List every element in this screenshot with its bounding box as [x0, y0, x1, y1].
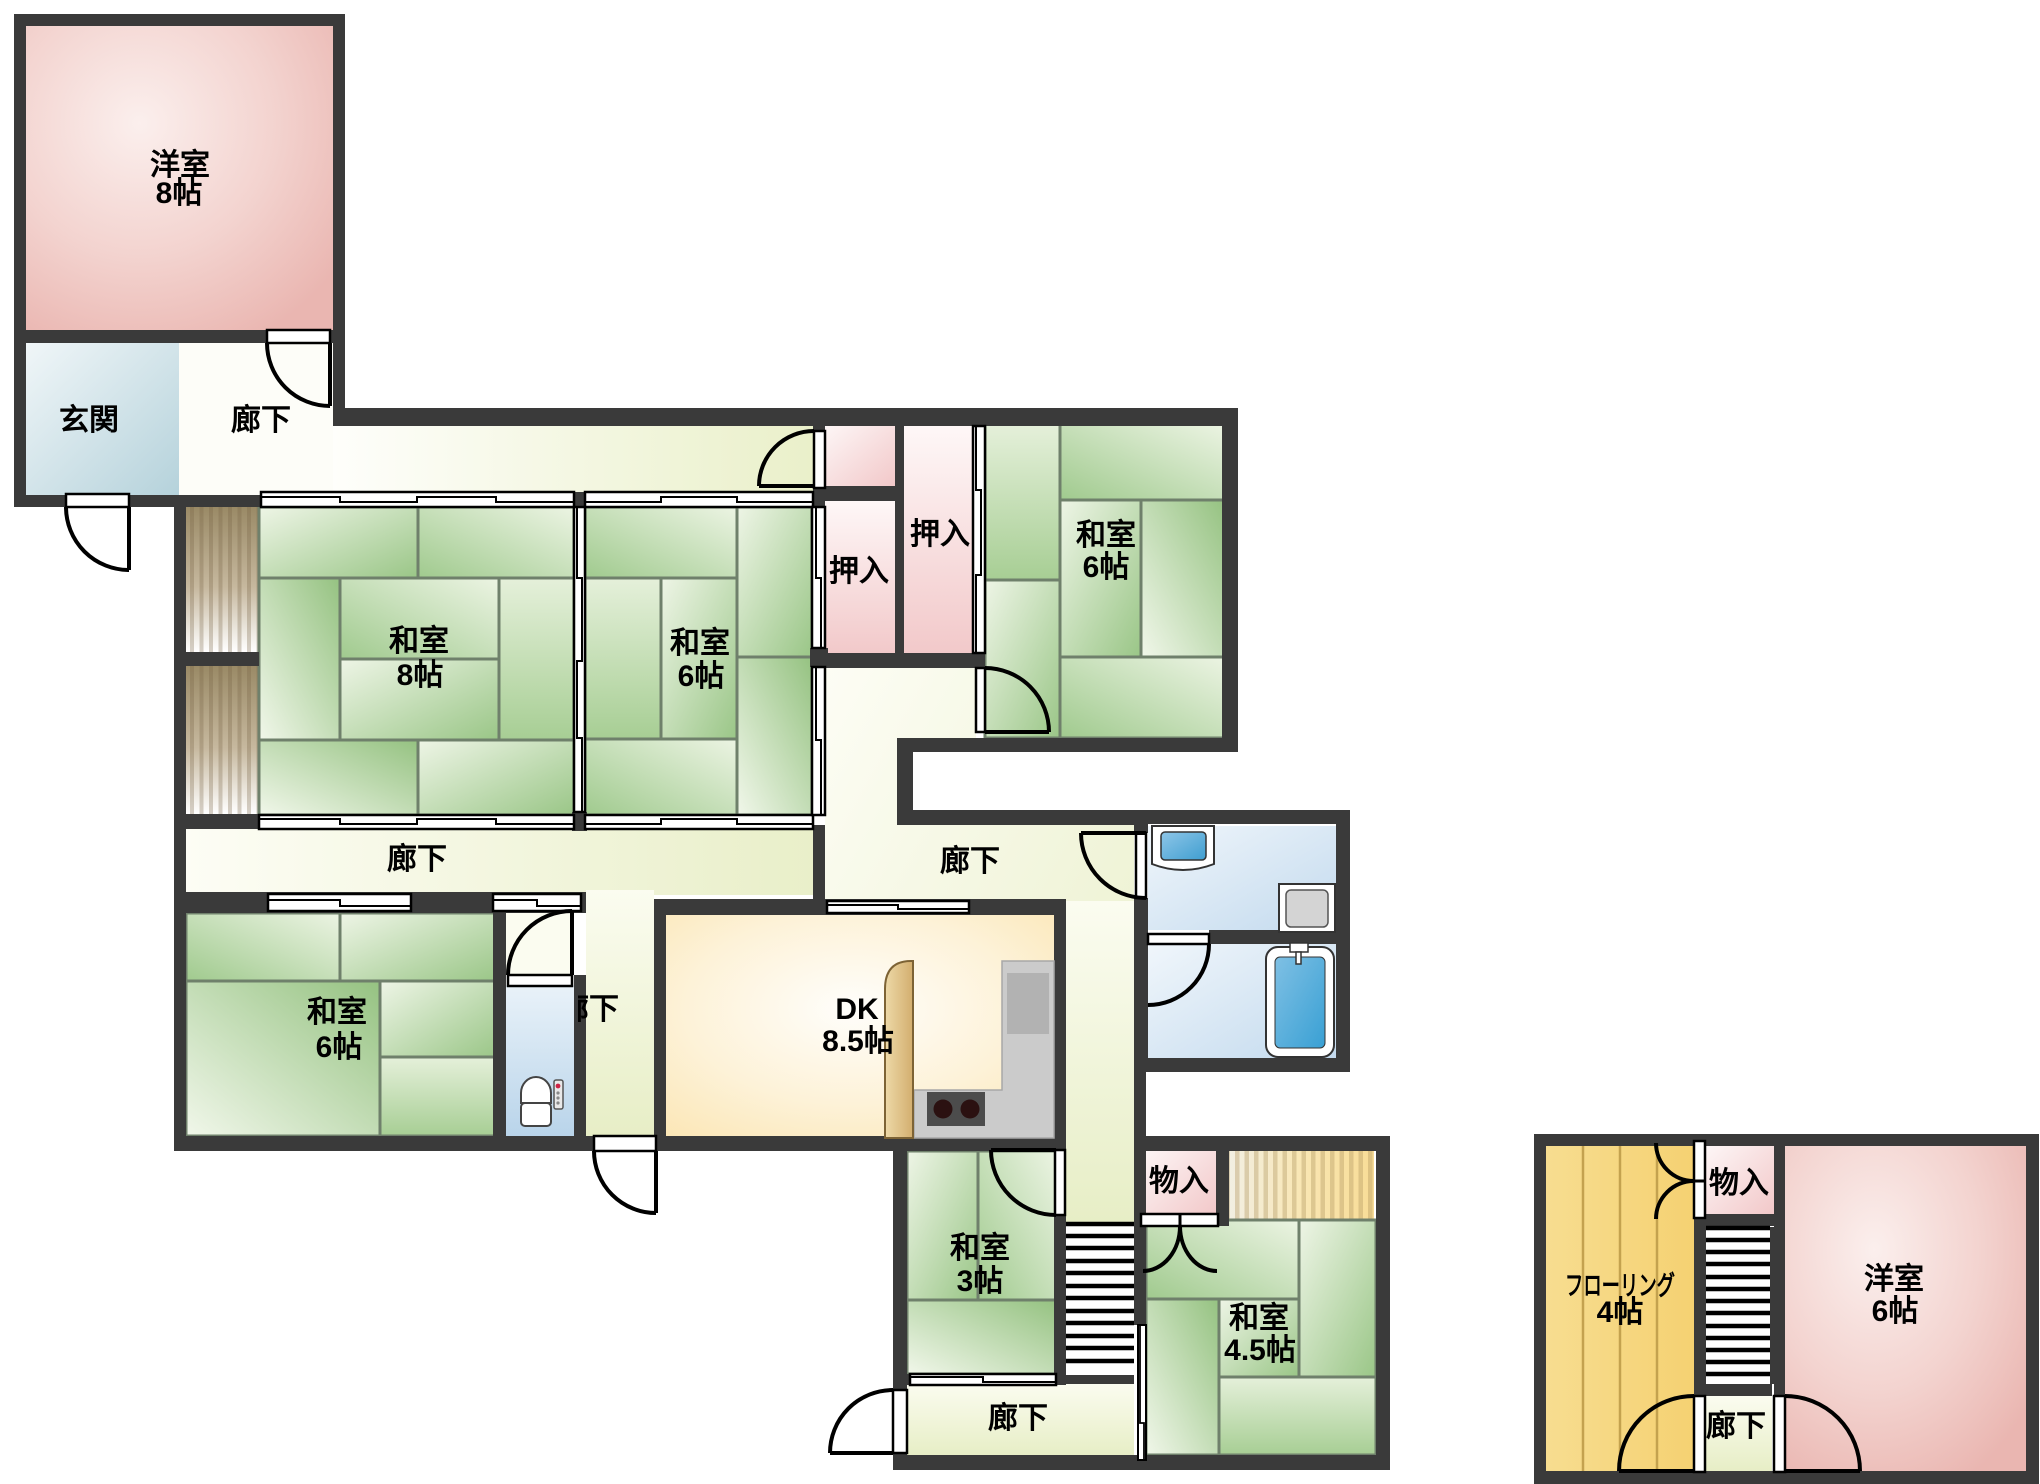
svg-text:押入: 押入	[829, 555, 889, 588]
svg-text:玄関: 玄関	[59, 403, 119, 437]
svg-text:廊下: 廊下	[988, 1401, 1048, 1435]
svg-text:3帖: 3帖	[957, 1265, 1004, 1298]
svg-text:8帖: 8帖	[397, 659, 444, 692]
svg-text:和室: 和室	[389, 624, 449, 658]
svg-text:物入: 物入	[1149, 1165, 1209, 1198]
svg-text:和室: 和室	[1229, 1301, 1289, 1335]
svg-text:8.5帖: 8.5帖	[822, 1025, 894, 1058]
svg-text:4帖: 4帖	[1597, 1296, 1644, 1329]
svg-text:物入: 物入	[1709, 1167, 1769, 1200]
svg-text:8帖: 8帖	[156, 177, 203, 210]
svg-text:4.5帖: 4.5帖	[1224, 1334, 1296, 1367]
svg-text:廊下: 廊下	[1706, 1409, 1766, 1443]
svg-text:DK: DK	[835, 993, 879, 1026]
svg-text:6帖: 6帖	[1083, 551, 1130, 584]
svg-text:廊下: 廊下	[387, 842, 447, 876]
svg-text:押入: 押入	[910, 518, 970, 551]
svg-text:廊下: 廊下	[940, 844, 1000, 878]
svg-text:6帖: 6帖	[678, 660, 725, 693]
svg-text:和室: 和室	[307, 995, 367, 1029]
svg-text:洋室: 洋室	[1864, 1262, 1924, 1296]
svg-text:6帖: 6帖	[316, 1031, 363, 1064]
svg-text:6帖: 6帖	[1872, 1295, 1919, 1328]
svg-text:廊下: 廊下	[231, 403, 291, 437]
svg-text:和室: 和室	[670, 626, 730, 660]
svg-text:和室: 和室	[1076, 518, 1136, 552]
svg-text:和室: 和室	[950, 1231, 1010, 1265]
